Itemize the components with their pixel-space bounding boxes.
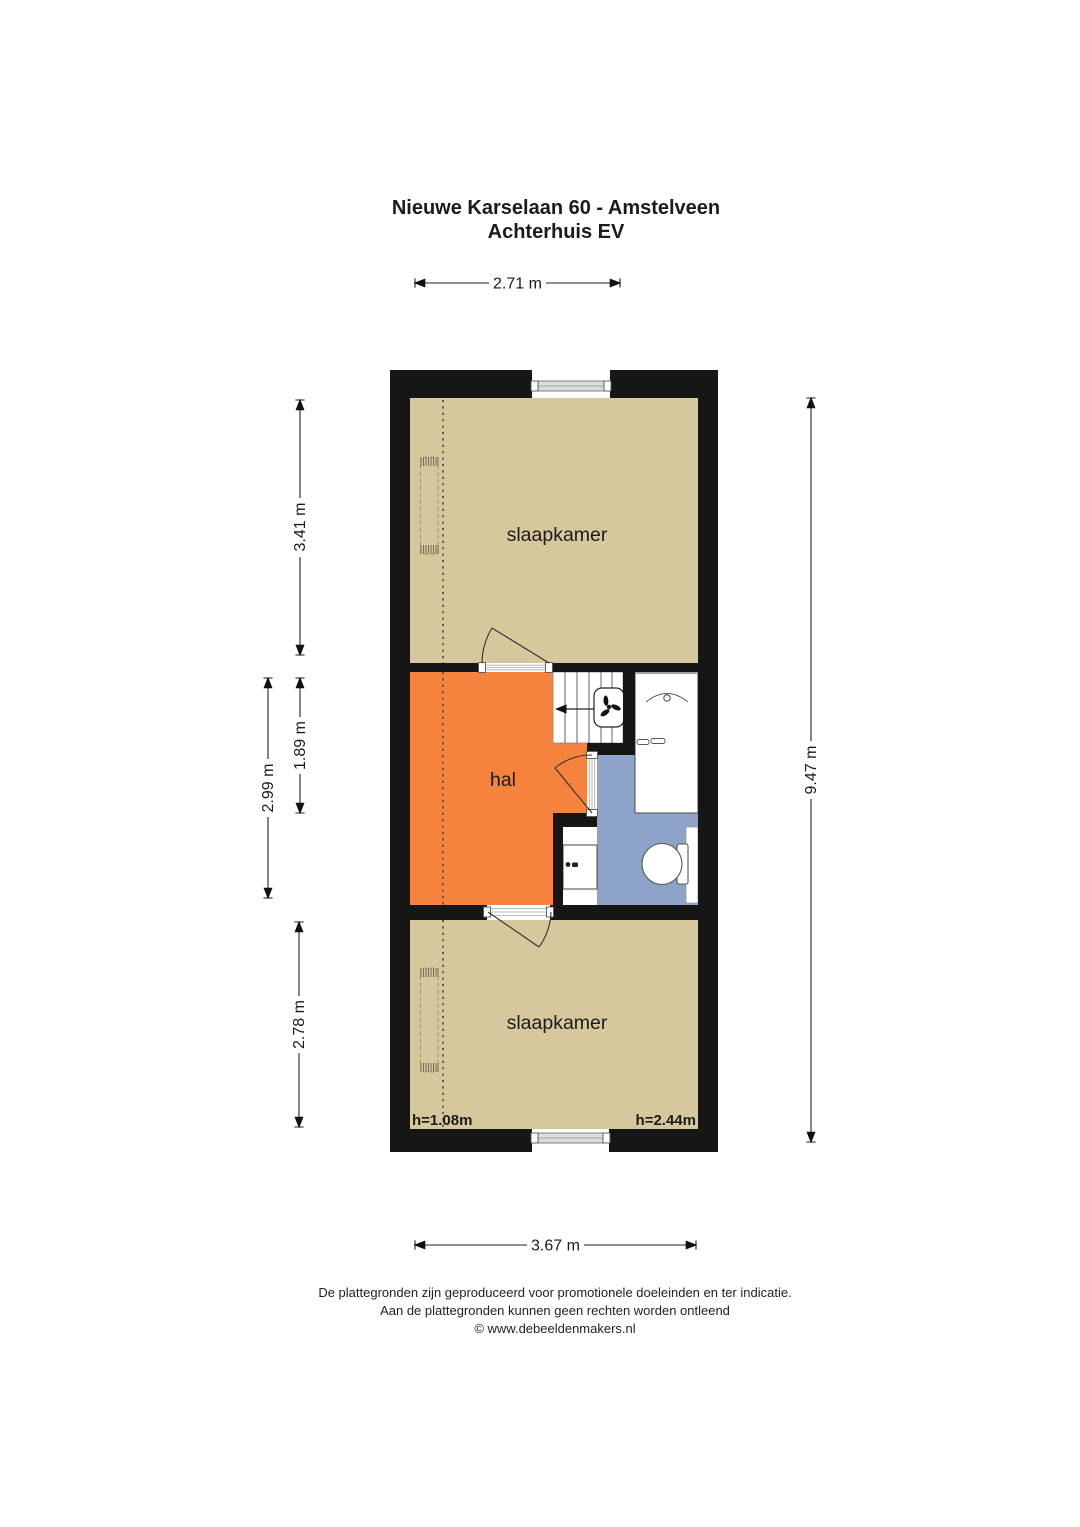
dimension-left-hal-inner: 1.89 m bbox=[292, 678, 309, 813]
sink bbox=[563, 845, 597, 889]
svg-text:9.47 m: 9.47 m bbox=[803, 746, 820, 795]
room-label-hall: hal bbox=[490, 769, 516, 791]
window-bottom bbox=[531, 1129, 610, 1152]
footer-copyright: © www.debeeldenmakers.nl bbox=[474, 1321, 635, 1336]
floorplan-page: Nieuwe Karselaan 60 - Amstelveen Achterh… bbox=[0, 0, 1080, 1527]
svg-text:2.71 m: 2.71 m bbox=[493, 276, 542, 293]
toilet-bowl bbox=[642, 844, 682, 885]
svg-text:2.78 m: 2.78 m bbox=[291, 1000, 308, 1049]
window-top bbox=[531, 370, 611, 398]
height-label-right: h=2.44m bbox=[636, 1112, 696, 1129]
bathtub bbox=[635, 673, 698, 813]
dimension-left-hal-outer: 2.99 m bbox=[260, 678, 277, 898]
svg-text:1.89 m: 1.89 m bbox=[292, 721, 309, 770]
room-label-bedroom-top: slaapkamer bbox=[507, 524, 608, 546]
dimension-top-width: 2.71 m bbox=[415, 276, 620, 293]
page-subtitle: Achterhuis EV bbox=[488, 221, 625, 243]
sink-faucet bbox=[566, 862, 571, 867]
dimension-right-total: 9.47 m bbox=[803, 398, 820, 1142]
dimension-left-top: 3.41 m bbox=[292, 400, 309, 655]
staircase bbox=[553, 672, 624, 743]
height-label-left: h=1.08m bbox=[412, 1112, 472, 1129]
page-title: Nieuwe Karselaan 60 - Amstelveen bbox=[392, 197, 720, 219]
dimension-bottom-width: 3.67 m bbox=[415, 1238, 696, 1255]
dimension-left-bottom: 2.78 m bbox=[291, 922, 308, 1127]
footer-disclaimer-line2: Aan de plattegronden kunnen geen rechten… bbox=[380, 1303, 730, 1318]
svg-text:3.67 m: 3.67 m bbox=[531, 1238, 580, 1255]
floor-plan: Nieuwe Karselaan 60 - Amstelveen Achterh… bbox=[0, 0, 1080, 1527]
bathtub-drain bbox=[664, 695, 670, 701]
bathtub-handle bbox=[651, 739, 665, 744]
svg-text:3.41 m: 3.41 m bbox=[292, 503, 309, 552]
bathtub-handle bbox=[637, 740, 649, 745]
room-label-bedroom-bottom: slaapkamer bbox=[507, 1012, 608, 1034]
sink-faucet bbox=[572, 863, 578, 868]
footer-disclaimer-line1: De plattegronden zijn geproduceerd voor … bbox=[318, 1285, 791, 1300]
svg-text:2.99 m: 2.99 m bbox=[260, 764, 277, 813]
